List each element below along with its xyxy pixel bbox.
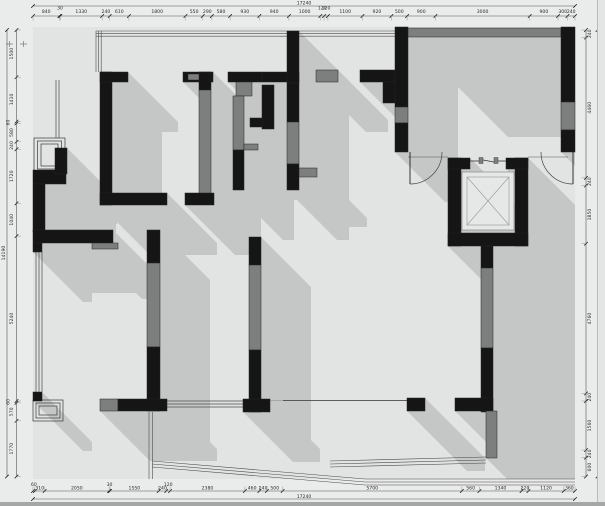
partition-wall	[92, 243, 118, 249]
structural-wall	[287, 83, 299, 122]
dim-label: 240	[102, 9, 111, 15]
partition-wall	[233, 96, 244, 150]
dim-label: 1000	[299, 9, 311, 15]
dim-label: 240	[587, 177, 593, 186]
dim-label: 840	[42, 9, 51, 15]
structural-wall	[481, 246, 493, 268]
floorplan-drawing: 8403013302406101800550290580930940100012…	[0, 0, 605, 506]
structural-wall	[199, 72, 211, 90]
dim-label: 580	[9, 128, 15, 137]
dim-label: 550	[190, 9, 199, 15]
structural-wall	[249, 237, 261, 265]
dim-label: 4760	[587, 313, 593, 325]
structural-wall	[395, 27, 408, 107]
dim-label: 1100	[339, 9, 351, 15]
partition-wall	[481, 268, 493, 348]
dim-label: 4460	[587, 102, 593, 114]
dim-label: 900	[417, 9, 426, 15]
window-edge-strip	[597, 0, 605, 506]
structural-wall	[561, 130, 575, 152]
dim-label: 1720	[9, 170, 15, 182]
dim-label: 120	[322, 6, 331, 12]
dim-label: 290	[203, 9, 212, 15]
dim-label: 580	[217, 9, 226, 15]
partition-wall	[486, 411, 497, 458]
structural-wall	[250, 118, 262, 127]
structural-wall	[407, 398, 425, 411]
floorplan-viewer: 8403013302406101800550290580930940100012…	[0, 0, 605, 506]
structural-wall	[147, 230, 160, 263]
dim-label: 60	[6, 399, 12, 405]
dim-label: 930	[240, 9, 249, 15]
structural-wall	[561, 27, 575, 102]
dim-label: 900	[539, 9, 548, 15]
structural-wall	[33, 184, 45, 232]
structural-wall	[233, 150, 244, 190]
dim-label: 3000	[477, 9, 489, 15]
structural-wall	[33, 392, 42, 401]
structural-wall	[100, 72, 128, 82]
dim-label: 1850	[587, 209, 593, 221]
dim-label: 1340	[495, 486, 507, 492]
dim-label: 1040	[9, 214, 15, 226]
dim-label: 2380	[202, 486, 214, 492]
dim-label: 5240	[9, 313, 15, 325]
dim-label: 220	[521, 486, 530, 492]
structural-wall	[383, 82, 395, 103]
dim-total-label: 17240	[297, 494, 312, 500]
dim-label: 1500	[9, 48, 15, 60]
dim-label: 600	[587, 463, 593, 472]
structural-wall	[55, 148, 67, 174]
partition-wall	[147, 263, 160, 347]
dim-label: 1120	[540, 486, 552, 492]
dim-label: 500	[270, 486, 279, 492]
dim-total-label: 17240	[297, 1, 312, 7]
dim-label: 120	[164, 482, 173, 488]
dim-label: 1550	[129, 486, 141, 492]
structural-wall	[448, 233, 528, 246]
dim-label: 310	[35, 486, 44, 492]
structural-wall	[228, 72, 262, 82]
dim-label: 570	[9, 407, 15, 416]
dim-total-label: 14190	[1, 246, 7, 261]
dim-label: 240	[9, 141, 15, 150]
structural-wall	[100, 72, 112, 205]
dim-label: 460	[248, 486, 257, 492]
dim-label: 500	[395, 9, 404, 15]
partition-wall	[316, 70, 338, 82]
dim-label: 1770	[9, 443, 15, 455]
dim-label: 1330	[75, 9, 87, 15]
dim-label: 30	[57, 6, 63, 12]
dim-label: 240	[587, 393, 593, 402]
dim-label: 360	[565, 486, 574, 492]
structural-wall	[287, 164, 299, 190]
structural-wall	[287, 31, 299, 83]
structural-wall	[33, 243, 42, 252]
partition-wall	[249, 265, 261, 350]
structural-wall	[395, 123, 408, 152]
elevator-door-block	[494, 158, 498, 164]
dim-label: 2050	[71, 486, 83, 492]
structural-wall	[100, 193, 167, 205]
dim-label: 1410	[9, 93, 15, 105]
partition-wall	[299, 168, 317, 177]
structural-wall	[185, 193, 214, 205]
dim-label: 1560	[587, 420, 593, 432]
elevator-door-block	[479, 158, 483, 164]
structural-wall	[506, 158, 528, 169]
dim-label: 240	[567, 9, 576, 15]
structural-wall	[360, 70, 395, 82]
structural-wall	[243, 399, 270, 412]
dim-label: 610	[115, 9, 124, 15]
partition-wall	[395, 107, 408, 123]
partition-wall	[199, 90, 211, 194]
dim-label: 940	[270, 9, 279, 15]
dim-label: 5700	[366, 486, 378, 492]
partition-wall	[561, 102, 575, 130]
dim-label: 240	[587, 29, 593, 38]
structural-wall	[448, 158, 470, 169]
partition-wall	[236, 82, 252, 96]
dim-label: 240	[259, 486, 268, 492]
structural-wall	[262, 85, 274, 129]
dim-label: 560	[466, 486, 475, 492]
structural-wall	[118, 399, 167, 411]
dim-label: 30	[107, 482, 113, 488]
dim-label: 1800	[151, 9, 163, 15]
dim-label: 240	[587, 449, 593, 458]
dim-label: 60	[6, 120, 12, 126]
partition-wall	[100, 399, 118, 411]
partition-wall	[244, 144, 258, 150]
partition-wall	[287, 122, 299, 164]
partition-wall	[408, 28, 561, 37]
dim-label: 920	[373, 9, 382, 15]
window-bottom-edge	[0, 502, 605, 506]
structural-wall	[33, 230, 113, 243]
structural-wall	[455, 398, 493, 411]
